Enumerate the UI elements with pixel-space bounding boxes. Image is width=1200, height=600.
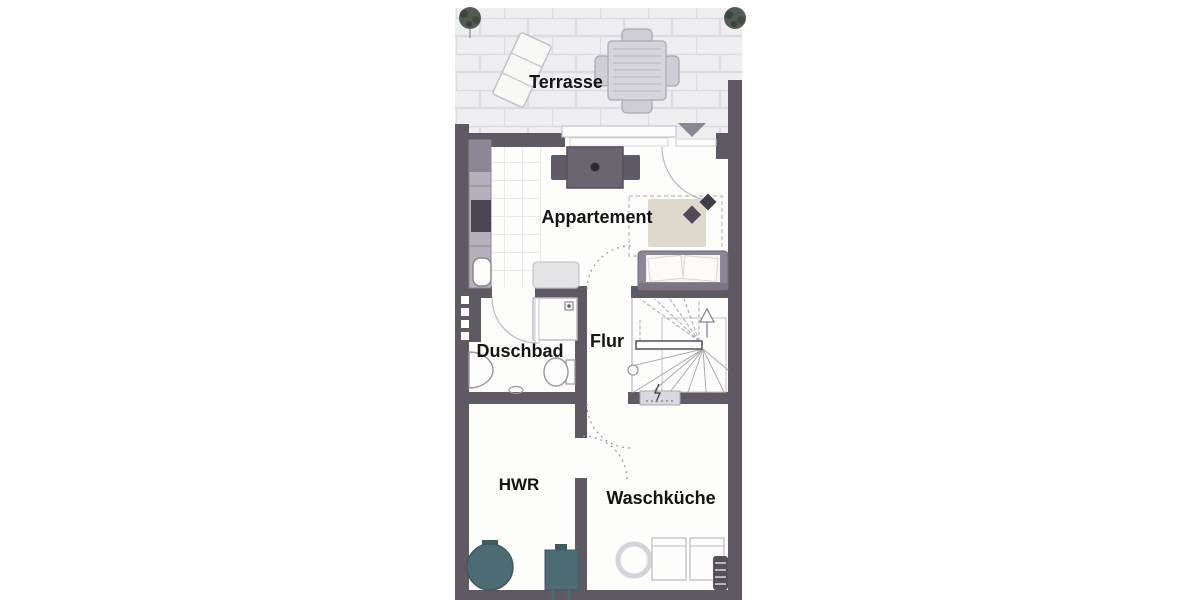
terrace: Terrasse	[455, 7, 746, 138]
terrace-window	[562, 126, 676, 146]
kitchen-sink	[473, 258, 491, 286]
plant-icon	[724, 7, 746, 29]
stair-handrail	[636, 341, 702, 349]
room-label-appartement: Appartement	[541, 207, 652, 227]
sofa	[638, 251, 728, 290]
wall-top-right	[716, 133, 742, 147]
stove	[471, 200, 491, 232]
wall-bottom	[455, 590, 742, 600]
wall-lower-1	[455, 392, 587, 404]
wall-right	[728, 80, 742, 600]
ventilation-shaft	[455, 290, 481, 342]
boiler	[545, 550, 579, 590]
wall-top-right-notch	[716, 147, 728, 159]
floorplan-page: Terrasse	[0, 0, 1200, 600]
sideboard	[533, 262, 579, 288]
wall-left	[455, 124, 469, 600]
newel-post	[628, 365, 638, 375]
shower	[533, 298, 577, 340]
toilet	[544, 358, 575, 386]
radiator	[713, 556, 728, 590]
water-tank	[467, 544, 513, 590]
room-label-hwr: HWR	[499, 475, 540, 494]
rug	[648, 199, 706, 247]
room-label-terrasse: Terrasse	[529, 72, 603, 92]
wall-partition-top	[575, 404, 587, 438]
washing-machine	[652, 538, 686, 580]
kitchen-counter	[469, 140, 491, 288]
chair	[551, 155, 567, 180]
floorplan-drawing: Terrasse	[0, 0, 1200, 600]
room-label-waschkueche: Waschküche	[606, 488, 715, 508]
door-leaf	[535, 298, 539, 343]
room-label-duschbad: Duschbad	[476, 341, 563, 361]
chair	[623, 155, 640, 180]
wall-lower-3	[678, 392, 742, 404]
room-label-flur: Flur	[590, 331, 624, 351]
